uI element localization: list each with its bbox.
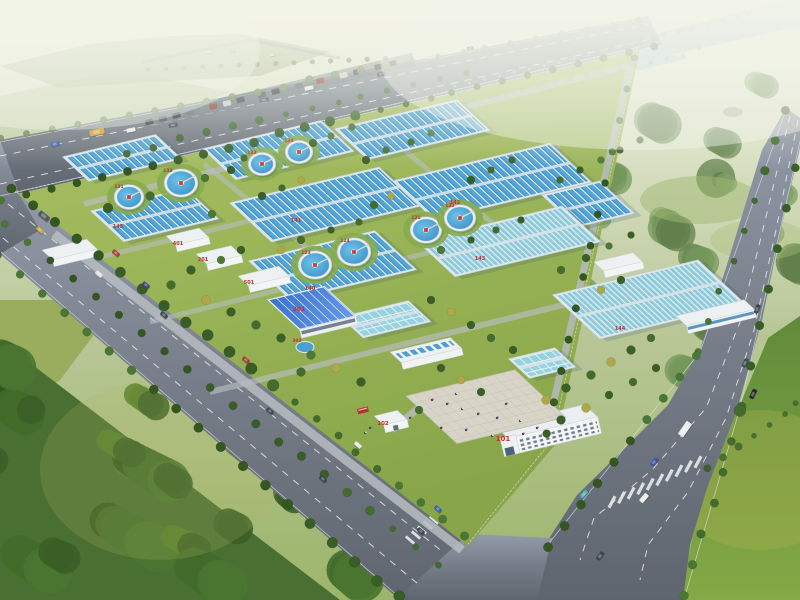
treatment-plant-scene: Aerial bird's-eye architectural renderin… <box>0 0 800 600</box>
aerial-rendering: Aerial bird's-eye architectural renderin… <box>0 0 800 600</box>
